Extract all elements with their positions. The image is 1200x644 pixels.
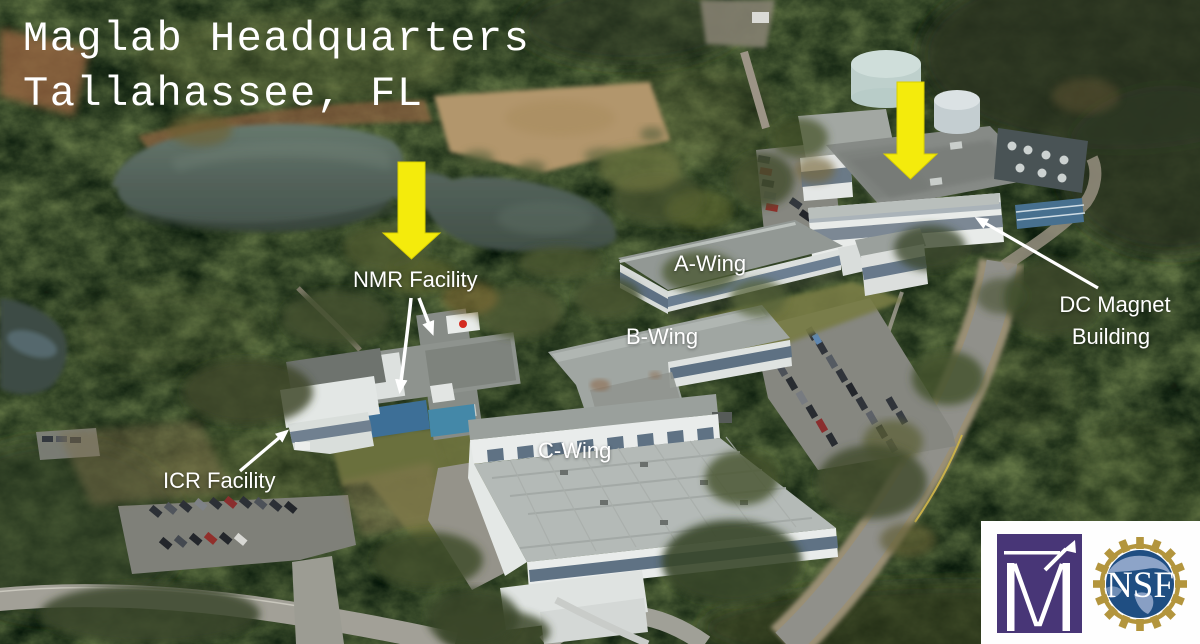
svg-text:A-Wing: A-Wing (674, 251, 746, 276)
svg-text:ICR Facility: ICR Facility (163, 468, 275, 493)
svg-text:Maglab Headquarters: Maglab Headquarters (23, 15, 530, 63)
svg-text:NMR Facility: NMR Facility (353, 267, 478, 292)
svg-text:Tallahassee, FL: Tallahassee, FL (23, 70, 424, 118)
svg-text:DC Magnet: DC Magnet (1059, 292, 1170, 317)
svg-text:B-Wing: B-Wing (626, 324, 698, 349)
svg-text:NSF: NSF (1106, 565, 1174, 606)
svg-text:C-Wing: C-Wing (538, 438, 611, 463)
svg-text:Building: Building (1072, 324, 1150, 349)
